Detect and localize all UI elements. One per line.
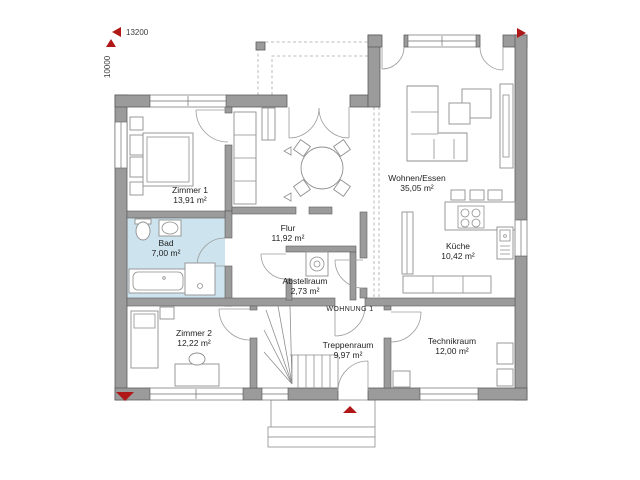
window-wohnen-north [408, 35, 476, 47]
technik-unit-2 [497, 369, 513, 386]
wall-kueche-west-a [360, 212, 367, 258]
wall-abstell-north [286, 246, 356, 252]
label-flur-area: 11,92 m² [272, 233, 305, 243]
stair-straight-treads [290, 355, 338, 388]
fixtures-abstellraum [306, 252, 328, 276]
label-flur-name: Flur [281, 223, 296, 233]
door-kueche [335, 260, 363, 288]
furniture-zimmer1 [130, 117, 193, 195]
door-wohnen-north-left [382, 47, 404, 69]
wall-north-right-a [368, 35, 382, 47]
porch-dashed-outer [258, 42, 373, 95]
wall-technik-west-stub [384, 306, 391, 310]
label-zimmer2-name: Zimmer 2 [176, 328, 212, 338]
floor-plan-canvas: 13200 10000 Zimmer 1 13,91 m² Bad 7,00 m… [0, 0, 640, 480]
door-zimmer2 [219, 309, 250, 340]
entry-closet [262, 108, 275, 140]
nightstand-2 [130, 135, 143, 155]
coffee-table-small [449, 103, 470, 124]
door-terrace [338, 361, 368, 391]
wall-south-d [368, 388, 420, 400]
label-treppenraum-name: Treppenraum [323, 340, 374, 350]
label-bad-name: Bad [158, 238, 173, 248]
wall-flur-partition-a [232, 207, 296, 214]
wall-south-c [288, 388, 338, 400]
label-zimmer1-name: Zimmer 1 [172, 185, 208, 195]
window-zimmer1-west [115, 122, 127, 168]
wall-north-right-c [476, 35, 480, 47]
wall-north-left-c [350, 95, 368, 107]
wall-technik-west [384, 338, 391, 388]
round-table [301, 147, 343, 189]
label-treppenraum-area: 9,97 m² [334, 350, 363, 360]
label-kueche-area: 10,42 m² [441, 251, 475, 261]
washing-machine [306, 252, 328, 276]
window-stair-south [262, 388, 288, 400]
label-abstellraum-name: Abstellraum [283, 276, 328, 286]
swing-markers [284, 147, 291, 201]
label-wohnung1: WOHNUNG 1 [326, 306, 373, 313]
entrance-door-left-leaf [289, 107, 319, 138]
label-wohnen-name: Wohnen/Essen [388, 173, 446, 183]
dim-arrow-up-icon [106, 39, 116, 47]
wall-north-left-b [226, 95, 287, 107]
desk [175, 364, 219, 386]
stair-winder-treads [264, 306, 292, 384]
bar-stool-2 [470, 190, 484, 200]
wall-kueche-west-b [360, 288, 367, 298]
porch-dashed-inner [272, 56, 373, 95]
terrace-step-2 [268, 437, 375, 447]
window-kueche-east [515, 220, 527, 256]
window-zimmer1-north [150, 95, 226, 107]
shower-tray [185, 263, 215, 295]
wall-zimmer2-east [250, 338, 257, 388]
kitchen-counter-south [403, 276, 491, 293]
wall-zimmer1-bad [127, 211, 225, 218]
door-wohnen-north-right [480, 47, 503, 70]
label-abstellraum-area: 2,73 m² [291, 286, 320, 296]
wall-middle-horizontal-b [365, 298, 515, 306]
toilet-icon [136, 222, 150, 240]
technik-unit-1 [497, 343, 513, 364]
door-technikraum [391, 312, 421, 342]
wall-north-right-b [404, 35, 408, 47]
wall-zimmer2-east-stub [250, 306, 257, 310]
floor-plan-drawing: 13200 10000 Zimmer 1 13,91 m² Bad 7,00 m… [0, 0, 640, 480]
wall-east-lower [515, 256, 527, 400]
porch-post [256, 42, 265, 50]
wall-east-upper [515, 35, 527, 220]
wall-flur-west-b [225, 211, 232, 238]
tall-cabinet [402, 212, 413, 274]
terrace-steps [268, 400, 375, 447]
double-bed [143, 133, 193, 186]
wall-flur-partition-b [309, 207, 332, 214]
bathtub [129, 269, 187, 293]
door-zimmer1 [196, 110, 228, 142]
terrace-step-1 [268, 427, 375, 437]
wall-flur-west-a [225, 145, 232, 211]
dim-arrow-left-icon [112, 27, 121, 37]
wall-middle-horizontal-a [127, 298, 335, 306]
label-zimmer2-area: 12,22 m² [177, 338, 211, 348]
dimension-vertical: 10000 [103, 55, 112, 78]
window-zimmer2-south [150, 388, 243, 400]
bar-stool-3 [488, 190, 502, 200]
label-zimmer1-area: 13,91 m² [173, 195, 207, 205]
desk-chair [189, 353, 205, 365]
window-technik-south [420, 388, 478, 400]
label-technikraum-area: 12,00 m² [435, 346, 469, 356]
nightstand-1 [130, 117, 143, 130]
wall-south-b [243, 388, 262, 400]
entrance-door-right-leaf [319, 107, 349, 138]
furniture-flur [234, 108, 350, 204]
wall-north-left-a [115, 95, 150, 107]
dimension-annotations: 13200 10000 [103, 27, 149, 78]
wall-south-e [478, 388, 527, 400]
terrace-landing [271, 400, 375, 427]
nightstand-4 [130, 182, 143, 195]
technik-unit-3 [393, 371, 410, 387]
open-boundary-dashed [374, 107, 379, 298]
label-bad-area: 7,00 m² [152, 248, 181, 258]
bedside-shelf [160, 307, 174, 319]
nightstand-3 [130, 157, 143, 177]
tv-sideboard [500, 84, 513, 168]
bar-stool-1 [451, 190, 465, 200]
wall-abstell-east [350, 252, 356, 300]
label-kueche-name: Küche [446, 241, 470, 251]
label-wohnen-area: 35,05 m² [400, 183, 434, 193]
label-technikraum-name: Technikraum [428, 336, 476, 346]
furniture-wohnen [407, 84, 513, 168]
single-bed [131, 311, 158, 368]
dimension-horizontal: 13200 [126, 28, 149, 37]
